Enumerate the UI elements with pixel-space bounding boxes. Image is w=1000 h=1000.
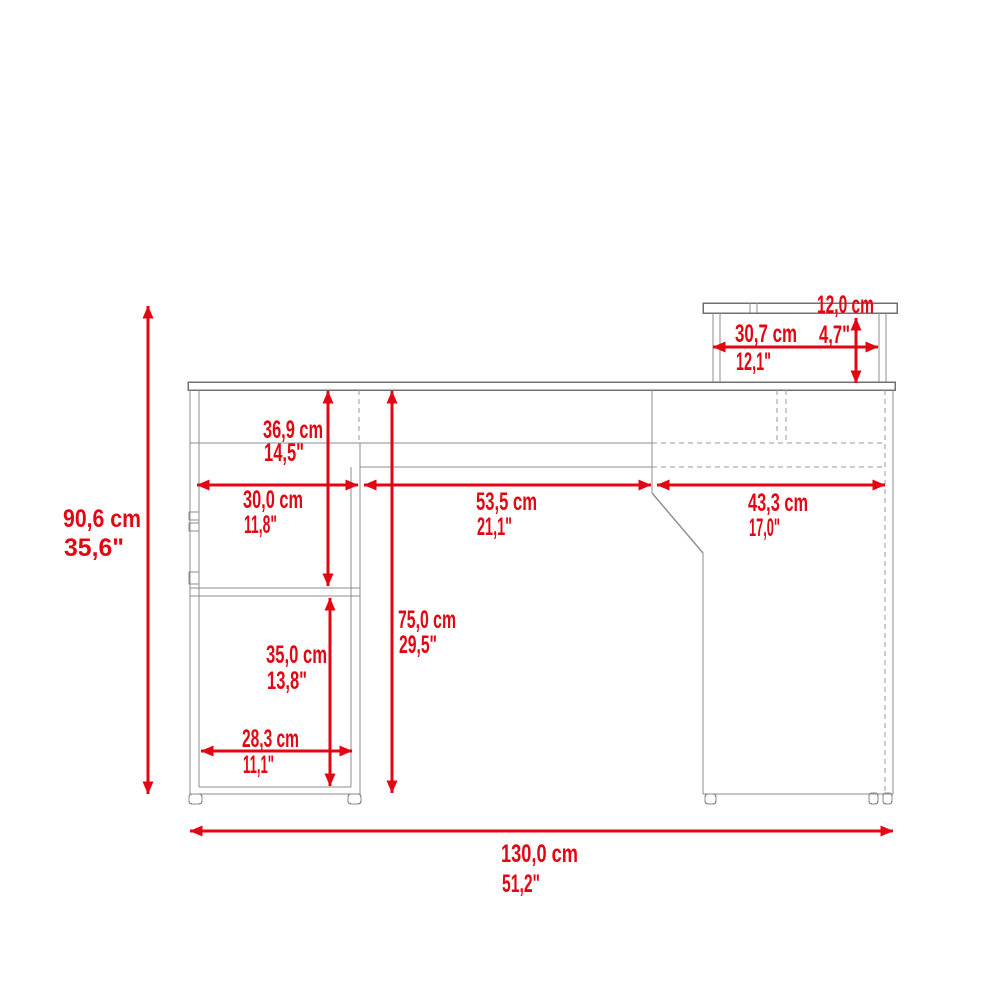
dim-hutch-height: 12,0 cm 4,7" [817, 291, 874, 383]
dim-label-desk-height-cm: 75,0 cm [398, 606, 456, 634]
dim-label-overall-height-cm: 90,6 cm [63, 505, 141, 533]
desktop-surface [188, 382, 895, 390]
dim-label-right-return-width-cm: 43,3 cm [748, 489, 808, 517]
dim-label-hutch-height-in: 4,7" [819, 321, 850, 349]
dim-label-kneehole-width-in: 21,1" [477, 513, 512, 541]
dim-label-compartment-width-in: 11,1" [243, 751, 274, 779]
desk-dimension-diagram: 90,6 cm 35,6" 12,0 cm 4,7" 30,7 cm 12,1"… [0, 0, 1000, 1000]
dim-label-compartment-height-in: 13,8" [267, 667, 307, 695]
dim-compartment-height: 35,0 cm 13,8" [266, 598, 330, 786]
dimension-diagram-page: 90,6 cm 35,6" 12,0 cm 4,7" 30,7 cm 12,1"… [0, 0, 1000, 1000]
dim-label-hutch-height-cm: 12,0 cm [817, 291, 874, 319]
dim-label-desktop-to-shelf-in: 14,5" [264, 439, 304, 467]
dim-label-pedestal-width-cm: 30,0 cm [243, 486, 303, 514]
dim-label-desk-height-in: 29,5" [399, 631, 437, 659]
dim-kneehole-width: 53,5 cm 21,1" [364, 485, 651, 541]
kneehole-diagonal-edge [652, 493, 703, 553]
dim-label-overall-width-in: 51,2" [502, 870, 540, 898]
dim-label-overall-height-in: 35,6" [64, 534, 124, 562]
dim-overall-width: 130,0 cm 51,2" [190, 831, 893, 898]
dim-right-return-width: 43,3 cm 17,0" [657, 485, 885, 542]
dim-label-pedestal-width-in: 11,8" [244, 511, 277, 539]
dim-label-overall-width-cm: 130,0 cm [501, 840, 578, 868]
dim-label-hutch-width-cm: 30,7 cm [735, 320, 797, 348]
pedestal-right-foot [348, 794, 361, 804]
right-leg-foot [705, 794, 716, 804]
dim-label-hutch-width-in: 12,1" [736, 348, 771, 376]
pedestal-left-foot [189, 794, 202, 804]
dim-label-kneehole-width-cm: 53,5 cm [476, 488, 537, 516]
dim-label-right-return-width-in: 17,0" [749, 514, 780, 542]
dim-desk-height: 75,0 cm 29,5" [392, 391, 456, 793]
dim-hutch-width: 30,7 cm 12,1" [713, 320, 878, 376]
dim-label-compartment-height-cm: 35,0 cm [266, 641, 327, 669]
dim-overall-height: 90,6 cm 35,6" [63, 306, 148, 794]
dim-label-compartment-width-cm: 28,3 cm [242, 725, 299, 753]
dim-pedestal-width: 30,0 cm 11,8" [197, 485, 358, 539]
